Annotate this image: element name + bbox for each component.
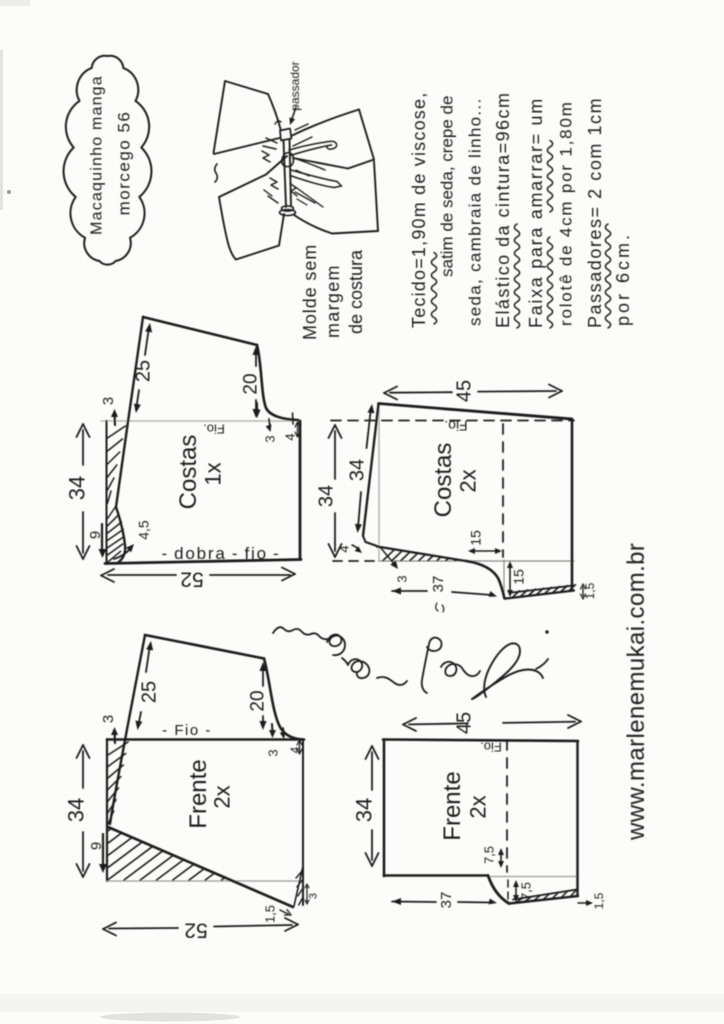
- svg-text:Elástico da cintura=96cm: Elástico da cintura=96cm: [493, 92, 513, 328]
- svg-text:25: 25: [133, 360, 155, 382]
- svg-text:1,5: 1,5: [262, 905, 277, 923]
- svg-text:15: 15: [511, 569, 527, 585]
- svg-text:25: 25: [139, 681, 161, 703]
- svg-text:Tecido=1,90m de viscose,: Tecido=1,90m de viscose,: [409, 92, 429, 328]
- svg-text:4: 4: [282, 433, 297, 440]
- svg-text:rolotê de 4cm por 1,80m: rolotê de 4cm por 1,80m: [557, 100, 576, 326]
- svg-text:margem: margem: [323, 264, 343, 338]
- svg-text:20: 20: [240, 373, 261, 394]
- svg-text:7,5: 7,5: [481, 846, 496, 864]
- svg-text:- Fio -: - Fio -: [162, 722, 212, 739]
- svg-text:37: 37: [438, 892, 455, 909]
- svg-text:Fio.: Fio.: [480, 740, 502, 755]
- svg-text:3: 3: [100, 397, 117, 405]
- svg-text:52: 52: [184, 919, 207, 942]
- svg-text:2x: 2x: [465, 795, 490, 818]
- svg-text:34: 34: [347, 459, 369, 481]
- svg-text:Frente: Frente: [439, 771, 466, 840]
- svg-text:3: 3: [265, 749, 280, 756]
- svg-text:45: 45: [454, 380, 476, 402]
- svg-text:Fio.: Fio.: [203, 422, 225, 437]
- svg-text:52: 52: [180, 568, 203, 591]
- svg-text:15: 15: [468, 530, 484, 546]
- svg-text:34: 34: [63, 798, 88, 822]
- svg-text:34: 34: [316, 485, 338, 507]
- svg-text:3: 3: [308, 893, 320, 899]
- svg-text:Fio.: Fio.: [444, 418, 467, 434]
- svg-text:34: 34: [351, 798, 376, 822]
- svg-text:2x: 2x: [209, 785, 234, 808]
- svg-text:2x: 2x: [455, 469, 480, 492]
- svg-text:Macaquinho manga: Macaquinho manga: [88, 75, 105, 235]
- svg-text:- dobra - fio -: - dobra - fio -: [161, 544, 280, 563]
- svg-text:Costas: Costas: [430, 443, 457, 518]
- svg-text:de costura: de costura: [346, 249, 366, 334]
- svg-text:1,5: 1,5: [592, 892, 606, 909]
- svg-text:7,5: 7,5: [518, 882, 533, 900]
- svg-text:morcego 56: morcego 56: [115, 111, 134, 216]
- svg-text:Frente: Frente: [185, 759, 212, 828]
- svg-text:20: 20: [247, 690, 268, 711]
- svg-text:por 6cm.: por 6cm.: [613, 232, 633, 326]
- svg-text:www.marlenemukai.com.br: www.marlenemukai.com.br: [623, 543, 650, 841]
- svg-text:37: 37: [430, 576, 447, 593]
- svg-text:3: 3: [100, 715, 117, 723]
- svg-text:satim de seda, crepe de: satim de seda, crepe de: [438, 96, 457, 277]
- svg-text:4: 4: [336, 545, 351, 552]
- svg-text:45: 45: [454, 712, 476, 734]
- svg-text:seda, cambraia de linho...: seda, cambraia de linho...: [466, 98, 485, 326]
- svg-text:Molde sem: Molde sem: [300, 244, 320, 340]
- svg-text:9: 9: [87, 531, 104, 539]
- svg-text:1x: 1x: [200, 462, 225, 485]
- svg-text:Faixa para amarrar= um: Faixa para amarrar= um: [526, 97, 546, 328]
- svg-text:3: 3: [394, 575, 409, 582]
- svg-text:4,5: 4,5: [136, 520, 152, 540]
- svg-text:Costas: Costas: [175, 435, 202, 510]
- svg-text:Passadores= 2 com 1cm: Passadores= 2 com 1cm: [585, 97, 605, 328]
- svg-text:1,5: 1,5: [583, 582, 597, 599]
- svg-text:9: 9: [88, 842, 105, 850]
- svg-text:34: 34: [64, 476, 89, 500]
- svg-text:3: 3: [262, 435, 277, 442]
- svg-text:passador: passador: [288, 61, 302, 110]
